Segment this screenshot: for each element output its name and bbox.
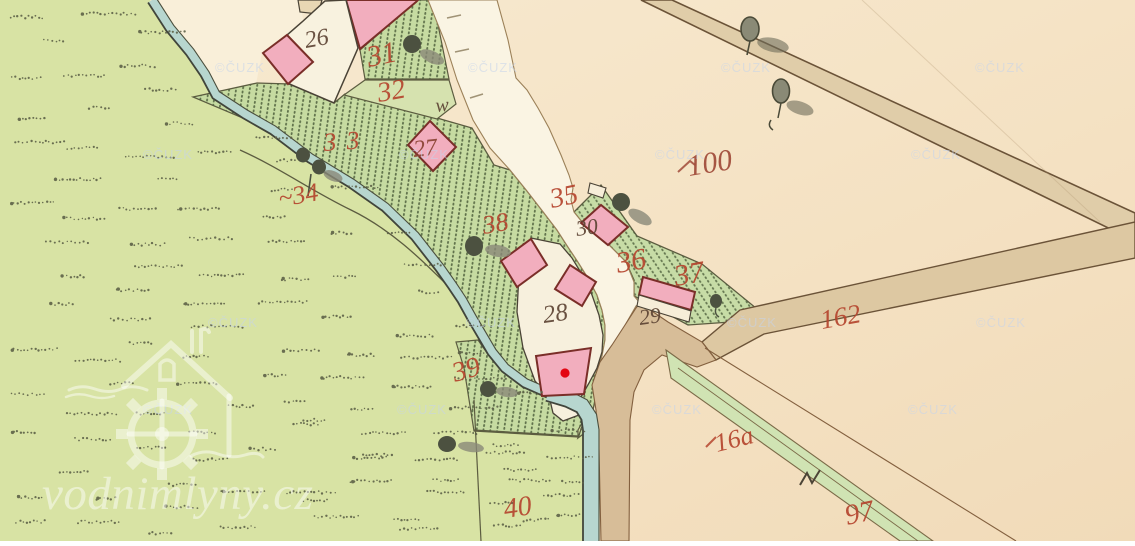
svg-text:©ČUZK: ©ČUZK [143,147,193,162]
svg-text:©ČUZK: ©ČUZK [399,147,449,162]
svg-text:26: 26 [303,24,331,54]
svg-text:©ČUZK: ©ČUZK [655,147,705,162]
svg-text:30: 30 [573,213,599,241]
svg-text:32: 32 [374,74,408,110]
svg-text:38: 38 [479,207,511,240]
svg-text:w: w [435,94,451,117]
svg-text:29: 29 [637,302,662,330]
svg-text:©ČUZK: ©ČUZK [727,315,777,330]
svg-text:vodnimlyny.cz: vodnimlyny.cz [42,468,313,520]
svg-text:©ČUZK: ©ČUZK [208,315,258,330]
svg-text:©ČUZK: ©ČUZK [468,60,518,75]
svg-text:©ČUZK: ©ČUZK [908,402,958,417]
svg-text:©ČUZK: ©ČUZK [215,60,265,75]
svg-text:©ČUZK: ©ČUZK [976,315,1026,330]
svg-text:28: 28 [541,299,570,329]
svg-text:©ČUZK: ©ČUZK [397,402,447,417]
svg-text:©ČUZK: ©ČUZK [911,147,961,162]
svg-text:33: 33 [321,125,370,157]
svg-text:©ČUZK: ©ČUZK [652,402,702,417]
svg-text:36: 36 [613,242,649,280]
svg-text:©ČUZK: ©ČUZK [466,315,516,330]
svg-text:©ČUZK: ©ČUZK [975,60,1025,75]
svg-text:©ČUZK: ©ČUZK [721,60,771,75]
svg-text:40: 40 [502,490,534,525]
